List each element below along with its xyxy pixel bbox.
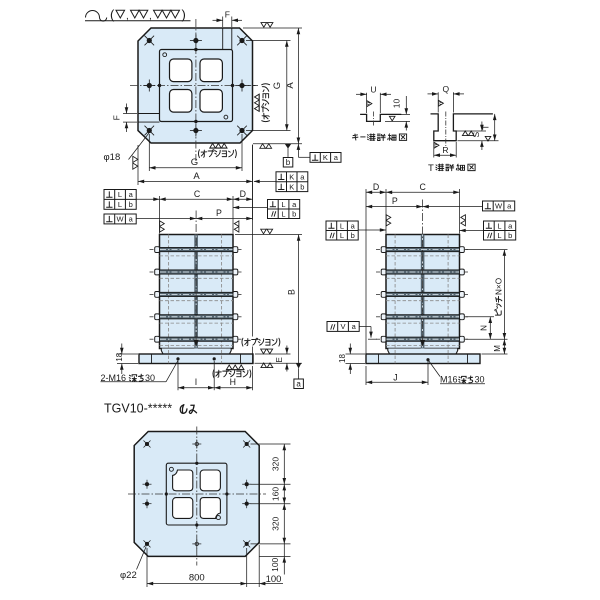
svg-text:Q: Q — [442, 84, 449, 94]
svg-text:b: b — [508, 231, 512, 240]
svg-text:b: b — [300, 182, 304, 191]
svg-text:30: 30 — [145, 373, 155, 383]
svg-text:P: P — [392, 196, 398, 206]
svg-text:a: a — [296, 380, 301, 389]
svg-text:L: L — [497, 221, 501, 230]
svg-text:T: T — [480, 125, 490, 130]
svg-text:): ) — [182, 7, 186, 22]
svg-text:160: 160 — [271, 487, 281, 501]
svg-text:10: 10 — [391, 99, 401, 109]
svg-text:F: F — [225, 10, 230, 20]
svg-text:(: ( — [110, 7, 115, 22]
svg-text:TGV10-*****: TGV10-***** — [104, 402, 172, 416]
svg-text:b: b — [129, 200, 133, 209]
svg-text:N×O: N×O — [494, 278, 503, 295]
svg-text:J: J — [393, 373, 397, 383]
svg-text:S: S — [471, 132, 481, 138]
svg-text:100: 100 — [270, 557, 280, 571]
svg-text:L: L — [118, 200, 122, 209]
svg-text:b: b — [292, 209, 296, 218]
svg-text:2-M16: 2-M16 — [101, 373, 127, 383]
svg-text:320: 320 — [271, 457, 281, 471]
svg-text:320: 320 — [271, 516, 281, 530]
svg-text:b: b — [286, 158, 291, 167]
svg-text:φ22: φ22 — [120, 570, 137, 581]
svg-text:G: G — [191, 157, 198, 168]
svg-text:K: K — [289, 172, 294, 181]
svg-text:18: 18 — [115, 352, 124, 361]
svg-text:I: I — [195, 377, 197, 387]
svg-text:L: L — [340, 231, 344, 240]
svg-text:D: D — [373, 182, 379, 192]
svg-text:U: U — [370, 84, 376, 94]
svg-text:L: L — [281, 209, 285, 218]
svg-text:D: D — [240, 189, 246, 199]
svg-text:M16: M16 — [440, 375, 458, 385]
svg-text:A: A — [193, 171, 200, 182]
svg-text:C: C — [420, 182, 427, 192]
svg-text:L: L — [118, 190, 122, 199]
svg-text:C: C — [194, 189, 201, 199]
svg-text:V: V — [340, 322, 345, 331]
svg-text:K: K — [289, 182, 294, 191]
svg-text:T: T — [428, 163, 434, 174]
svg-text:P: P — [216, 208, 222, 218]
svg-text:G: G — [272, 82, 283, 89]
svg-text:E: E — [275, 357, 284, 362]
svg-text:N: N — [479, 325, 488, 331]
svg-text:φ18: φ18 — [104, 152, 121, 163]
svg-text:W: W — [495, 202, 503, 211]
svg-text:M: M — [493, 345, 502, 352]
svg-text:L: L — [340, 221, 344, 230]
svg-text:L: L — [281, 200, 285, 209]
svg-text:W: W — [116, 215, 124, 224]
svg-text:L: L — [497, 231, 501, 240]
svg-text:100: 100 — [266, 574, 282, 585]
svg-text:R: R — [442, 145, 448, 155]
svg-text:800: 800 — [189, 573, 205, 584]
svg-text:H: H — [230, 377, 236, 387]
svg-text:F: F — [112, 115, 122, 120]
svg-text:b: b — [351, 231, 355, 240]
svg-text:A: A — [285, 82, 296, 89]
svg-text:B: B — [286, 289, 296, 295]
svg-text:18: 18 — [338, 354, 347, 363]
svg-text:30: 30 — [475, 375, 485, 385]
svg-text:K: K — [323, 153, 328, 162]
